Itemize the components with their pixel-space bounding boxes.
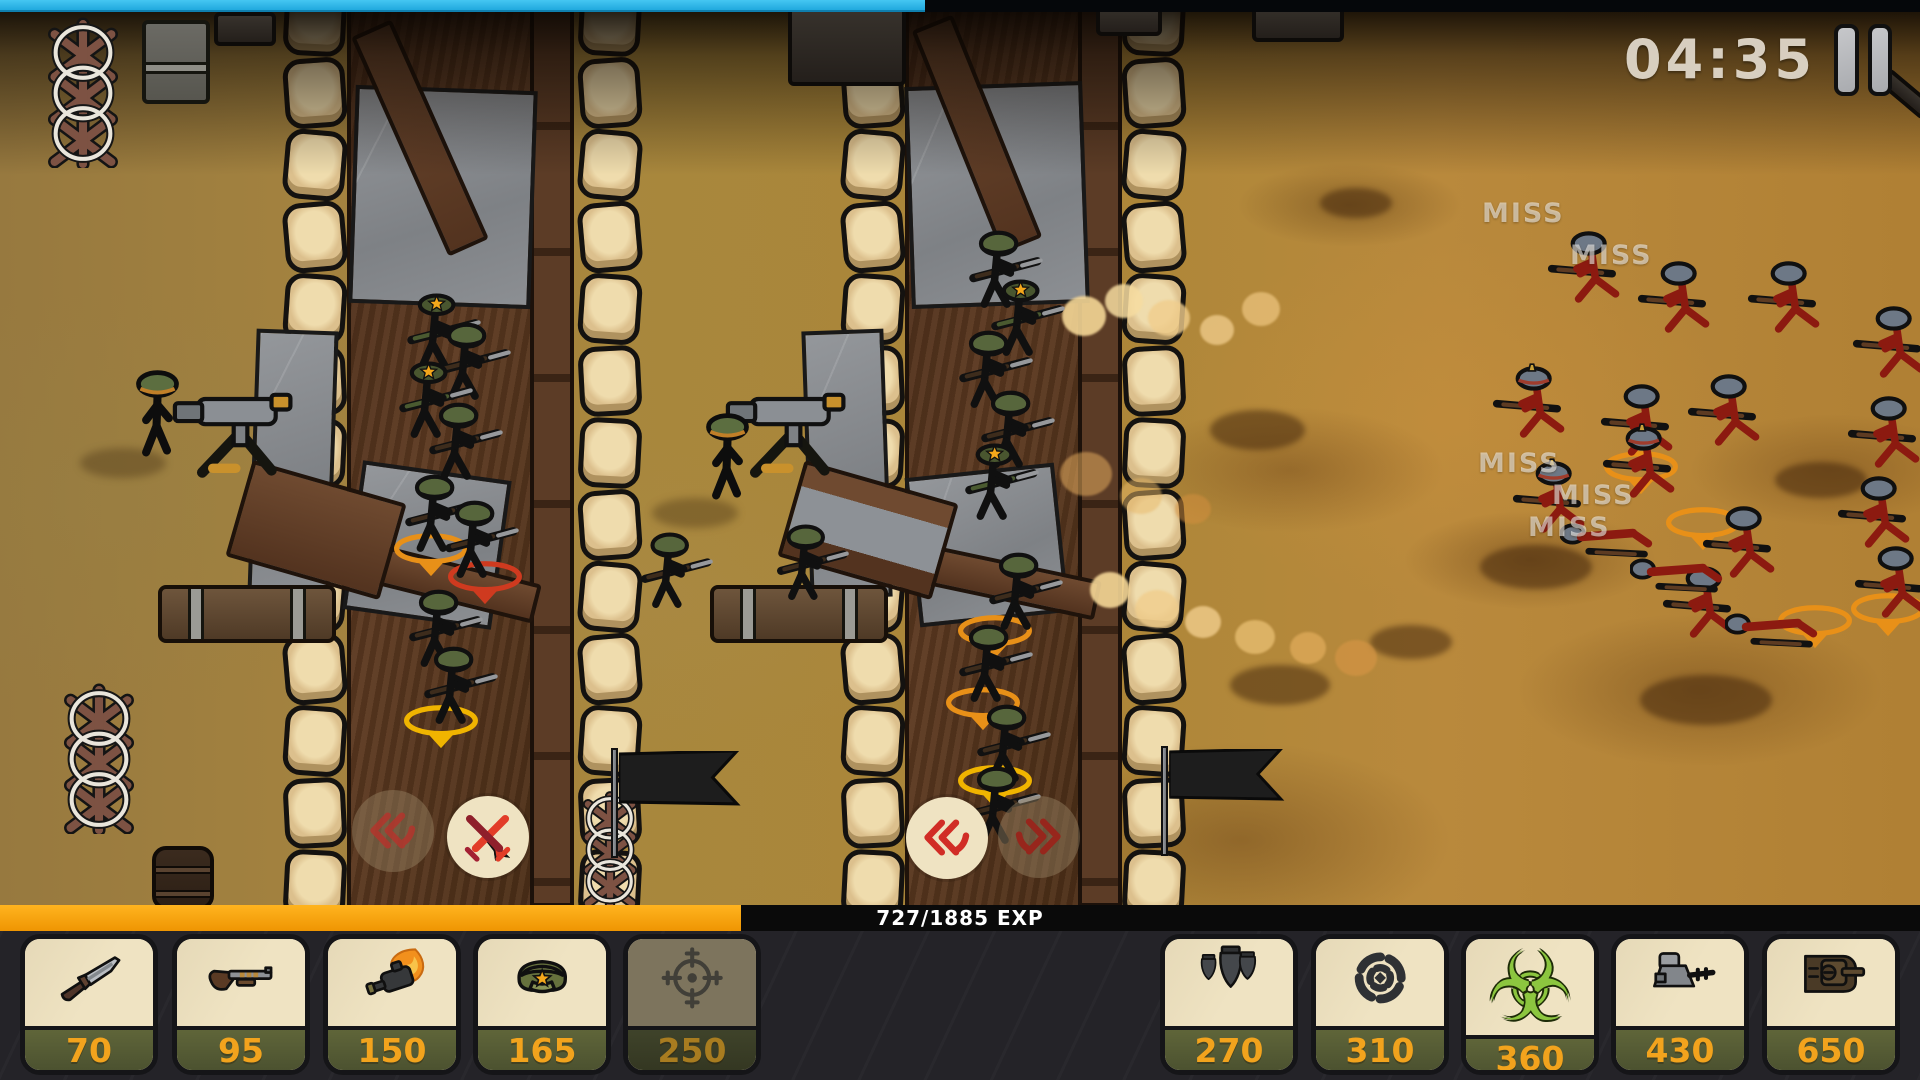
sandbag	[576, 631, 644, 706]
sandbag	[282, 776, 348, 849]
ability-artillery[interactable]: 310	[1311, 934, 1449, 1075]
officer-cap-icon	[491, 944, 593, 1012]
black-flag-icon	[1167, 749, 1287, 802]
ability-bomb-strike[interactable]: 270	[1160, 934, 1298, 1075]
shop-unit-shotgun[interactable]: 95	[172, 934, 310, 1075]
sandbag	[1121, 416, 1187, 489]
black-flag-icon	[617, 751, 743, 807]
sandbag	[839, 127, 907, 202]
ally-soldier[interactable]	[436, 496, 520, 580]
price-label: 650	[1797, 1031, 1866, 1070]
enemy-soldier-fallen	[1725, 595, 1821, 653]
gun-smoke	[1120, 478, 1162, 514]
price-label: 165	[508, 1031, 577, 1070]
sandbag	[281, 199, 349, 274]
supply-crate	[158, 585, 336, 643]
sandbag	[1120, 631, 1188, 706]
top-progress-fill	[0, 0, 925, 12]
battle-timer: 04:35	[1620, 28, 1820, 91]
sandbag	[839, 199, 907, 274]
crater	[1320, 188, 1392, 218]
ally-soldier[interactable]	[415, 642, 499, 726]
barbed-wire	[42, 16, 124, 168]
sandbag	[577, 344, 643, 417]
miss-label: MISS	[1478, 448, 1561, 479]
muzzle-flash	[1185, 606, 1221, 638]
ally-walker[interactable]	[110, 365, 205, 460]
muzzle-flash	[1062, 296, 1106, 336]
crater	[1370, 625, 1452, 659]
ammo-crate	[142, 20, 210, 104]
price-label: 270	[1195, 1031, 1264, 1070]
price-label: 360	[1496, 1039, 1565, 1075]
miss-label: MISS	[1552, 480, 1635, 511]
pause-button[interactable]	[1834, 24, 1892, 96]
game-stage: MISS MISS MISS MISS MISS 04:35 727/1885 …	[0, 0, 1920, 1080]
crater	[1210, 410, 1305, 450]
price-label: 310	[1346, 1031, 1415, 1070]
exp-bar: 727/1885 EXP	[0, 905, 1920, 931]
sandbag	[577, 56, 644, 130]
gun-smoke	[1175, 494, 1211, 524]
sandbag	[282, 704, 349, 778]
ally-officer[interactable]	[956, 438, 1040, 522]
shop-unit-sniper[interactable]: 250	[623, 934, 761, 1075]
ability-tank[interactable]: 650	[1762, 934, 1900, 1075]
gun-smoke	[1335, 640, 1377, 676]
muzzle-flash	[1200, 315, 1234, 345]
shotgun-icon	[190, 944, 292, 1012]
miss-label: MISS	[1482, 198, 1565, 229]
sandbag	[840, 776, 906, 849]
enemy-soldier	[1685, 368, 1769, 452]
muzzle-flash	[1235, 620, 1275, 654]
ally-soldier[interactable]	[950, 620, 1034, 704]
miss-label: MISS	[1570, 240, 1653, 271]
crater	[1230, 665, 1330, 705]
sandbag	[577, 416, 643, 489]
shop-unit-bayonet[interactable]: 70	[20, 934, 158, 1075]
gun-smoke	[1060, 452, 1112, 496]
shop-unit-officer[interactable]: 165	[473, 934, 611, 1075]
ally-soldier[interactable]	[768, 520, 850, 602]
machine-gun-icon	[1629, 944, 1731, 1012]
tank-icon	[1780, 944, 1882, 1012]
enemy-soldier	[1850, 300, 1920, 384]
trench2-advance-button[interactable]	[998, 796, 1080, 878]
price-label: 430	[1646, 1031, 1715, 1070]
sandbag	[577, 272, 644, 346]
dark-crate	[214, 12, 276, 46]
muzzle-flash	[1105, 284, 1143, 318]
enemy-soldier	[1745, 255, 1829, 339]
price-label: 250	[658, 1031, 727, 1070]
trench1-charge-button[interactable]	[447, 796, 529, 878]
sandbag	[576, 199, 644, 274]
shop-unit-flamethrower[interactable]: 150	[323, 934, 461, 1075]
bomb-strike-icon	[1178, 944, 1280, 1012]
sandbag	[840, 704, 907, 778]
enemy-soldier-spike-helmet	[1490, 360, 1574, 444]
price-label: 150	[358, 1031, 427, 1070]
gun-smoke	[1290, 632, 1326, 664]
sandbag	[1120, 199, 1188, 274]
muzzle-flash	[1090, 572, 1130, 608]
bottom-toolbar: 70 95	[0, 931, 1920, 1080]
barbed-wire	[578, 790, 642, 908]
price-label: 70	[66, 1031, 112, 1070]
pause-icon	[1834, 24, 1859, 96]
dark-crate	[788, 6, 906, 86]
sandbag	[282, 56, 349, 130]
sniper-scope-icon	[641, 944, 743, 1012]
enemy-soldier	[1852, 540, 1920, 624]
price-label: 95	[218, 1031, 264, 1070]
trench1-wood-edge	[530, 0, 574, 907]
sandbag	[1121, 344, 1187, 417]
sandbag	[576, 127, 644, 202]
ability-gas-strike[interactable]: ☣ 360	[1461, 934, 1599, 1075]
pause-icon	[1868, 24, 1893, 96]
trench1-retreat-button[interactable]	[352, 790, 434, 872]
gas-strike-icon: ☣	[1487, 939, 1573, 1035]
exp-label: 727/1885 EXP	[0, 906, 1920, 930]
trench2-retreat-button[interactable]	[906, 797, 988, 879]
ability-machine-gun[interactable]: 430	[1611, 934, 1749, 1075]
sandbag	[1121, 56, 1188, 130]
barrel	[152, 846, 214, 910]
muzzle-flash	[1242, 292, 1280, 326]
barbed-wire	[58, 682, 140, 834]
crater	[1640, 675, 1772, 725]
muzzle-flash	[1148, 300, 1190, 336]
bayonet-knife-icon	[38, 944, 140, 1012]
sandbag	[281, 127, 349, 202]
ally-walker[interactable]	[680, 408, 775, 503]
artillery-reticle-icon	[1329, 944, 1431, 1012]
muzzle-flash	[1135, 590, 1179, 628]
ally-soldier[interactable]	[632, 528, 714, 610]
flamethrower-icon	[341, 944, 443, 1012]
sandbag	[1120, 127, 1188, 202]
miss-label: MISS	[1528, 512, 1611, 543]
enemy-soldier	[1845, 390, 1920, 474]
enemy-soldier-fallen	[1630, 540, 1726, 598]
